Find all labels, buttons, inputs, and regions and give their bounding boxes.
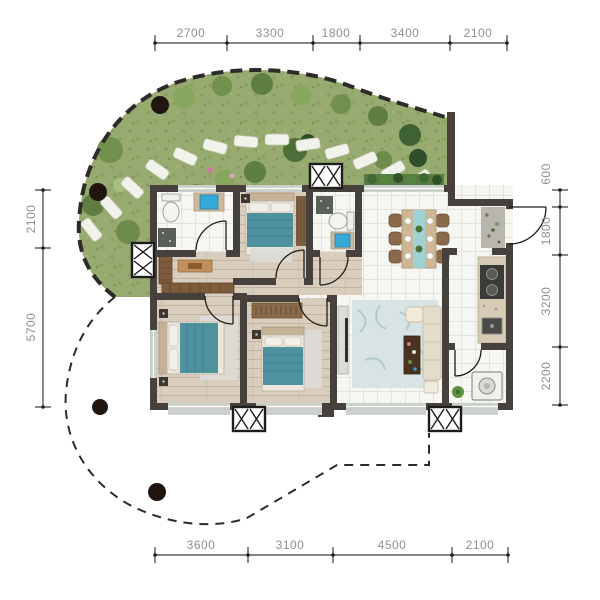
armchair <box>406 307 423 322</box>
bed-headboard <box>246 193 294 201</box>
garden-side-wall <box>447 112 455 192</box>
table-runner-teal <box>413 210 425 268</box>
toilet-bowl <box>329 213 347 229</box>
dim-label: 2100 <box>448 26 508 40</box>
bed-pillow <box>271 203 291 212</box>
dim-label: 4500 <box>362 538 422 552</box>
dimension-line-right <box>552 188 568 407</box>
toilet-bowl <box>163 202 179 222</box>
dim-label: 3600 <box>171 538 231 552</box>
dining-chair <box>436 232 449 245</box>
bed-duvet-teal <box>180 323 218 373</box>
bed-pillow <box>284 337 301 346</box>
side-table <box>424 381 438 393</box>
bed-pillow <box>169 325 178 346</box>
window-sill <box>346 410 426 415</box>
dining-chair <box>389 214 402 227</box>
bed-pillow <box>265 337 282 346</box>
bed-duvet-teal <box>247 213 293 247</box>
dim-label: 1800 <box>539 201 553 261</box>
dining-chair <box>389 232 402 245</box>
bed-headboard <box>262 327 304 335</box>
toilet-tank <box>162 194 180 201</box>
tree-icon <box>151 96 169 114</box>
tree-icon <box>148 483 166 501</box>
dim-label: 2100 <box>450 538 510 552</box>
bedside-rug <box>250 248 292 262</box>
burner <box>487 285 498 296</box>
hall-low-cabinet <box>162 283 234 293</box>
centerpiece <box>416 226 423 233</box>
tree-icon <box>92 399 108 415</box>
kitchen <box>478 257 506 343</box>
ac-box-bottom-right-icon <box>429 407 461 431</box>
dim-label: 2200 <box>539 346 553 406</box>
sink-basin-blue <box>335 234 350 247</box>
sink-basin-blue <box>200 195 218 209</box>
dim-label: 5700 <box>24 297 38 357</box>
shower-mat <box>316 196 333 214</box>
toilet-tank <box>347 212 354 230</box>
burner <box>487 269 498 280</box>
dim-label: 1800 <box>306 26 366 40</box>
dim-label: 600 <box>539 144 553 204</box>
floor-plan-drawing <box>0 0 600 600</box>
wardrobe <box>252 303 302 318</box>
window-planter <box>364 173 444 185</box>
ac-box-bottom-left-icon <box>233 407 265 431</box>
ac-box-left-icon <box>132 243 154 277</box>
dim-label: 3300 <box>240 26 300 40</box>
dim-label: 2100 <box>24 189 38 249</box>
dim-label: 3100 <box>260 538 320 552</box>
living-room <box>338 300 441 393</box>
ac-box-top-icon <box>310 164 342 188</box>
dim-label: 2700 <box>161 26 221 40</box>
dining-chair <box>389 250 402 263</box>
tree-icon <box>89 183 107 201</box>
dim-label: 3200 <box>539 271 553 331</box>
bed-pillow <box>169 349 178 370</box>
coffee-table <box>404 336 420 374</box>
entry-mat <box>481 207 505 248</box>
bed-pillow <box>249 203 269 212</box>
floor-plan-page: 2700 3300 1800 3400 2100 3600 3100 4500 … <box>0 0 600 600</box>
tv-screen <box>345 318 348 362</box>
sofa <box>423 306 441 380</box>
bed-duvet-teal <box>263 347 303 385</box>
window-sill <box>168 410 230 415</box>
shower-mat <box>158 228 176 247</box>
centerpiece <box>416 246 423 253</box>
bed-headboard <box>159 322 167 374</box>
dining-chair <box>436 214 449 227</box>
dim-label: 3400 <box>375 26 435 40</box>
